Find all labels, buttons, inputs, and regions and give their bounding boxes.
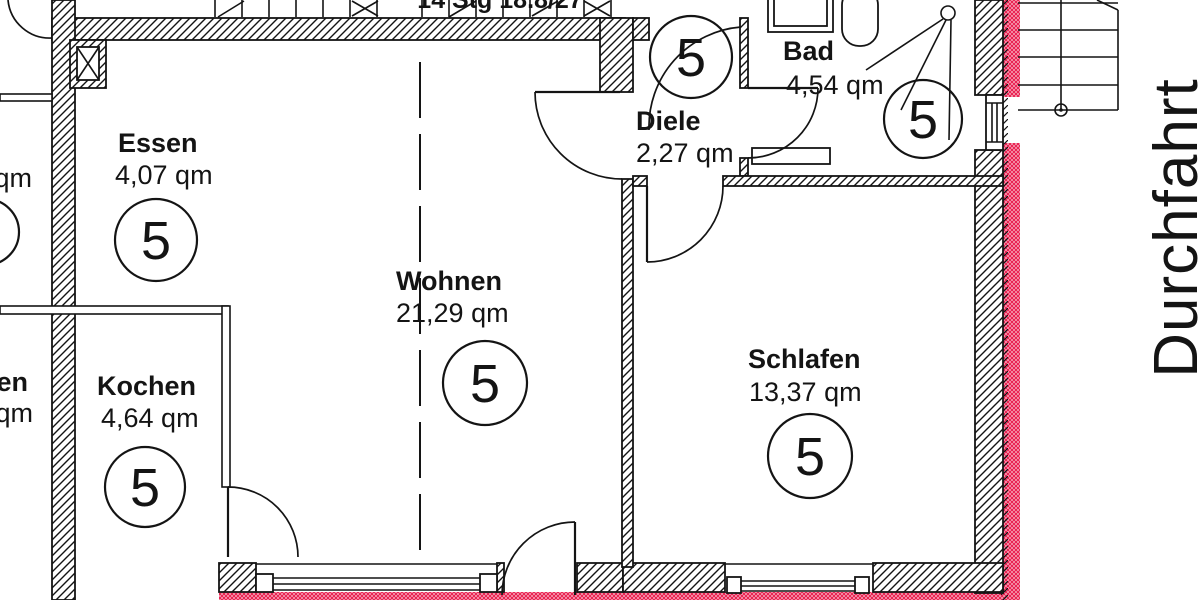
door-balcony xyxy=(502,522,575,595)
room-label-kochen: Kochen 4,64 qm 5 xyxy=(97,371,199,527)
unit-number: 5 xyxy=(141,211,171,271)
stair-note: 14 Stg 18.8/27 xyxy=(417,0,582,14)
wall-diele-bad-upper xyxy=(740,18,748,88)
wall-bottom-pier-3 xyxy=(577,563,623,592)
room-name: Bad xyxy=(783,36,834,66)
wall-schlafen-north-jamb xyxy=(633,176,647,186)
room-label-bad: Bad 4,54 qm 5 xyxy=(783,36,962,158)
interior-walls xyxy=(70,18,1003,567)
room-label-schlafen: Schlafen 13,37 qm 5 xyxy=(748,344,862,498)
room-area: 13,37 qm xyxy=(749,377,862,407)
room-label-diele: 5 Diele 2,27 qm xyxy=(636,16,734,168)
wall-bottom-pier-5 xyxy=(873,563,1003,592)
room-name: Kochen xyxy=(97,371,196,401)
wall-wohnen-schlafen xyxy=(622,179,633,567)
wall-diele-bad-lower xyxy=(740,158,748,176)
wall-bottom-pier-1 xyxy=(219,563,256,592)
room-name: Schlafen xyxy=(748,344,861,374)
unit-number: 5 xyxy=(676,28,706,88)
window-right-wall xyxy=(986,95,1003,150)
unit-number: 5 xyxy=(795,427,825,487)
wall-top xyxy=(52,18,625,40)
unit-number: 5 xyxy=(908,90,938,150)
toilet xyxy=(842,0,878,46)
red-strip-bottom xyxy=(219,592,1020,600)
neighbor-room-fragment: en xyxy=(0,367,28,397)
wall-essen-kochen xyxy=(0,306,228,314)
floor-plan-drawing: qm en qm 14 Stg 18.8/27 Essen 4,07 qm 5 … xyxy=(0,0,1200,600)
wall-kochen-wohnen xyxy=(222,306,230,487)
room-area: 4,54 qm xyxy=(786,70,884,100)
door-neighbor-swing xyxy=(8,0,52,38)
floor-plan-page: qm en qm 14 Stg 18.8/27 Essen 4,07 qm 5 … xyxy=(0,0,1200,600)
room-name: Wohnen xyxy=(396,266,502,296)
room-name: Essen xyxy=(118,128,198,158)
washbasin-inner xyxy=(774,0,827,26)
room-name: Diele xyxy=(636,106,701,136)
door-wohnen-diele xyxy=(535,92,622,179)
stair-newel-center xyxy=(1059,108,1063,112)
wall-schlafen-north xyxy=(723,176,1003,186)
stair-stringers xyxy=(1061,0,1118,110)
stair-treads-left-flight xyxy=(215,0,377,17)
door-diele-schlafen xyxy=(647,186,723,262)
neighbor-area-fragment-1: qm xyxy=(0,163,32,193)
wall-neighbor-upper xyxy=(0,94,52,101)
wall-bottom-pier-4 xyxy=(623,563,725,592)
unit-number: 5 xyxy=(470,354,500,414)
room-area: 21,29 qm xyxy=(396,298,509,328)
door-kochen xyxy=(228,487,298,557)
neighbor-unit-circle xyxy=(0,199,19,265)
neighbor-area-fragment-2: qm xyxy=(0,398,33,428)
staircase-durchfahrt xyxy=(1018,0,1118,116)
unit-number: 5 xyxy=(130,458,160,518)
room-label-wohnen: Wohnen 21,29 qm 5 xyxy=(396,266,527,425)
neighbor-apartment-fragments: qm en qm xyxy=(0,163,33,428)
wall-diele-north-jamb xyxy=(633,18,649,40)
stair-steps xyxy=(1018,3,1118,110)
wall-right-upper xyxy=(975,0,1003,95)
window-bottom-wohnen xyxy=(256,564,497,592)
wall-left xyxy=(52,0,75,600)
room-area: 4,07 qm xyxy=(115,160,213,190)
window-bottom-schlafen xyxy=(725,564,873,593)
room-label-essen: Essen 4,07 qm 5 xyxy=(115,128,213,281)
passage-label: Durchfahrt xyxy=(1142,78,1200,377)
wall-diele-west-upper xyxy=(600,18,633,92)
room-area: 4,64 qm xyxy=(101,403,199,433)
wall-right-lower xyxy=(975,150,1003,593)
room-area: 2,27 qm xyxy=(636,138,734,168)
drainpipe-symbol xyxy=(941,6,955,20)
